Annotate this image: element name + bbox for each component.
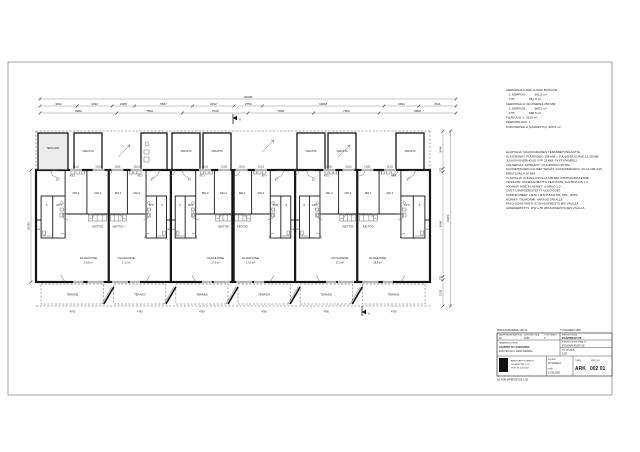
hall-label: ET — [188, 179, 192, 182]
building-address: KOIVUKUJA 3, 04200 KERAVA — [499, 350, 533, 353]
sink-fixture — [147, 208, 150, 211]
building-label: RAKENNUSKOHDE — [499, 341, 519, 344]
terrace-dimension: 4790 — [391, 311, 397, 314]
drawing-content-label: PIIRUSTUKSEN SISÄLTÖ — [562, 341, 587, 344]
wardrobe — [76, 171, 80, 174]
door-swing — [51, 171, 58, 178]
terrace-dimension: 4790 — [261, 311, 267, 314]
door-swing — [245, 214, 250, 219]
dimension-value: 11818 — [319, 102, 327, 106]
bedroom2-label: MH 2 — [258, 191, 265, 195]
terrace-screen — [104, 287, 114, 304]
window-size-label: 21x21 — [258, 167, 265, 169]
living-room-area: 17,0 m² — [122, 262, 131, 265]
living-room-area: 17,0 m² — [211, 262, 220, 265]
door-swing — [408, 171, 415, 178]
closet-label: VH — [426, 229, 429, 231]
drawing-number: 002 01 — [590, 366, 606, 372]
drawing-type-label: PIIRUSTUSLAJI — [562, 333, 578, 336]
dimension-value: 275 — [438, 167, 442, 172]
living-room-area: 19,5 m² — [84, 262, 93, 265]
closet-label: VH — [167, 229, 170, 231]
discipline-label: TUNN. — [575, 360, 582, 362]
window-size-label: 12x21 — [239, 167, 246, 169]
terrace-screen-line — [102, 287, 112, 304]
wardrobe — [381, 171, 385, 174]
sauna-stove — [43, 231, 46, 235]
bathroom-label: KPH — [188, 204, 193, 207]
living-room-label: OLOHUONE — [118, 256, 135, 260]
section-marker-letter: A — [368, 312, 370, 316]
sauna-stove — [163, 231, 165, 235]
storage-label: VARASTO — [336, 150, 347, 153]
dimension-value: 7600 — [343, 109, 350, 113]
general-note-line: ÄÄNENERISTYS: R'W ≥ 55 dB HUONEISTOJEN V… — [506, 206, 585, 210]
closet-label: VH — [296, 229, 299, 231]
bath-extension — [141, 133, 167, 170]
storage-label: VARASTO — [404, 150, 415, 153]
window-size-label: 21x21 — [202, 167, 209, 169]
bedroom2-label: MH 2 — [73, 191, 80, 195]
dimension-value: 8900 — [75, 109, 82, 113]
unit-id-label: AS 5 — [324, 175, 330, 178]
area-summary-line: KERROSALA RAK.LUVAN MUKAAN — [506, 88, 557, 92]
dimension-value: 2188 — [120, 102, 127, 106]
scale-label: MITTAKAAVA — [562, 349, 575, 352]
washer-fixture — [402, 213, 406, 217]
area-summary-line: KOKONAISALA (LASKETTU) 625,0 m² — [506, 125, 561, 129]
window-size-label: 21x21 — [134, 167, 141, 169]
terrace-label: TERASSI — [134, 293, 146, 297]
wardrobe — [81, 171, 85, 174]
discipline-code: ARK — [575, 366, 586, 372]
kitchen-counter — [216, 215, 232, 221]
sink-fixture — [144, 150, 149, 154]
hall-label: ET — [407, 179, 411, 182]
door-swing — [372, 214, 377, 219]
technical-label: TEKN./VAR. — [46, 147, 59, 150]
dimension-value: 10035 — [26, 222, 30, 230]
door-swing — [145, 233, 150, 238]
area-summary-line: KERROSLUKU 1 — [506, 120, 531, 124]
sauna-stove — [176, 231, 178, 235]
dimension-value: 7600 — [146, 109, 153, 113]
door-swing — [152, 171, 159, 178]
dimension-value: 7600 — [277, 109, 284, 113]
firm-logo — [499, 358, 508, 372]
dimension-value: 3611 — [55, 102, 62, 106]
dimension-value: 7600 — [212, 109, 219, 113]
number-label: PIIR. N:O — [591, 360, 600, 362]
terrace-dimension: 4790 — [324, 311, 330, 314]
terrace-screen — [290, 287, 300, 304]
terrace-screen — [352, 287, 362, 304]
kitchen-label: KEITTIÖ — [237, 225, 249, 229]
window-size-label: 21x21 — [326, 167, 333, 169]
door-swing — [276, 171, 283, 178]
door-swing — [340, 214, 345, 219]
window-size-label: 12x21 — [95, 167, 102, 169]
block-label: KORTTELI/TILA — [524, 333, 540, 336]
dimension-value: 3394 — [91, 102, 98, 106]
hall-label: ET — [56, 179, 60, 182]
title-block-above-left: PIIRUSTUSNUMERO 002 01 — [497, 330, 528, 332]
living-room-label: OLOHUONE — [369, 256, 386, 260]
designer-label: SUUNN. — [548, 359, 556, 361]
living-room-label: OLOHUONE — [242, 256, 259, 260]
dimension-value: 5637 — [160, 102, 167, 106]
living-room-label: OLOHUONE — [331, 256, 348, 260]
kitchen-label: KEITTIÖ — [363, 225, 375, 229]
bedroom2-label: MH 2 — [326, 191, 333, 195]
washer-fixture — [60, 213, 64, 217]
living-room-label: OLOHUONE — [207, 256, 224, 260]
storage-label: VARASTO — [180, 150, 191, 153]
bathroom-label: KPH — [273, 204, 278, 207]
building-name: ASUNTO OY KOIVURIVI — [499, 345, 530, 349]
section-marker-letter: A — [239, 118, 241, 122]
district-label: KAUPUNGINOSA/KYLÄ — [499, 333, 522, 336]
kitchen-counter — [235, 215, 251, 221]
window-size-label: 21x21 — [387, 167, 394, 169]
kitchen-label: KEITTIÖ — [92, 225, 104, 229]
sink-fixture — [60, 208, 64, 211]
hall-label: ET — [151, 179, 155, 182]
terrace-label: TERASSI — [258, 293, 270, 297]
bedroom2-label: MH 2 — [387, 191, 394, 195]
date-label: PVM — [548, 369, 553, 371]
bedroom1-label: MH 1 — [365, 191, 372, 195]
kitchen-counter — [88, 215, 106, 221]
technical-room — [38, 133, 68, 170]
plot-label: TONTTI/RN:O — [544, 334, 558, 336]
terrace-label: TERASSI — [196, 293, 208, 297]
date-value: 12.05.2020 — [548, 372, 561, 375]
door-swing — [269, 233, 274, 238]
firm-phone: PUH. 09 123 4567 — [511, 368, 530, 370]
area-summary-line: TILAVUUS n. 2615 m³ — [506, 116, 537, 120]
terrace-label: TERASSI — [388, 293, 400, 297]
title-block-above-right: TYÖNUMERO 2096 — [560, 329, 581, 332]
kitchen-counter — [340, 215, 356, 221]
designer-value: M. MÄKELÄ — [548, 362, 561, 365]
sauna-label: S — [161, 204, 163, 207]
kitchen-label: KEITTIÖ — [342, 225, 354, 229]
door-swing — [268, 214, 274, 220]
hall-label: ET — [275, 179, 279, 182]
bedroom2-label: MH 2 — [202, 191, 209, 195]
sink-fixture — [402, 208, 406, 211]
terrace-dimension: 4790 — [199, 311, 205, 314]
wardrobe — [386, 171, 390, 174]
dimension-value: 2135 — [438, 289, 442, 296]
wardrobe — [129, 171, 132, 174]
door-swing — [307, 171, 314, 178]
hall-label: ET — [312, 179, 316, 182]
wardrobe — [334, 171, 337, 174]
living-room-label: OLOHUONE — [80, 256, 97, 260]
door-swing — [316, 233, 321, 238]
bedroom1-label: MH 1 — [115, 191, 122, 195]
kitchen-label: KEITTIÖ — [113, 225, 125, 229]
wc-fixture — [145, 142, 149, 146]
terrace-label: TERASSI — [320, 293, 332, 297]
window-size-label: 12x21 — [221, 167, 228, 169]
unit-id-label: AS 6 — [391, 175, 397, 178]
dimension-value: 2750 — [245, 102, 252, 106]
terrace-dimension: 4790 — [70, 311, 76, 314]
bathroom-label: KPH — [405, 204, 410, 207]
unit-id-label: AS 2 — [137, 175, 143, 178]
kitchen-label: KEITTIÖ — [218, 225, 230, 229]
window-size-label: 21x21 — [73, 167, 80, 169]
floor-plan-drawing: PIIRUSTUSNUMERO 002 01 TYÖNUMERO 2096 KA… — [0, 0, 640, 452]
bathroom-label: KPH — [149, 204, 154, 207]
sink-fixture — [191, 208, 194, 211]
drawing-content-value: POHJAPIIRUSTUS — [562, 343, 585, 347]
dimension-value: 42096 — [244, 95, 253, 99]
dimension-value: 4032 — [210, 102, 217, 106]
terrace-screen — [166, 287, 176, 304]
washer-fixture — [144, 157, 149, 162]
dimension-value: 3611 — [434, 102, 441, 106]
sauna-label: S — [285, 204, 287, 207]
door-swing — [121, 214, 126, 219]
sink-fixture — [316, 208, 319, 211]
scale-value: 1:50 — [562, 352, 568, 356]
terrace-screen-line — [350, 287, 360, 304]
roof-slope-arrow — [118, 145, 130, 157]
terrace-screen — [228, 287, 238, 304]
terrace-dimension: 4790 — [137, 311, 143, 314]
dimension-value: 8900 — [414, 109, 421, 113]
area-summary-line: 1. KERROS 585,5 m² — [506, 106, 547, 110]
living-room-area: 17,0 m² — [336, 262, 345, 265]
bathroom-label: KPH — [312, 204, 317, 207]
firm-name-line1: ARKKITEHTITOIMISTO — [511, 360, 535, 363]
window-size-label: 12x21 — [364, 167, 371, 169]
roof-slope-arrow — [262, 140, 274, 152]
window-size-label: 12x21 — [114, 167, 121, 169]
area-summary-line: YHT. 561,5 m² — [506, 97, 541, 101]
terrace-screen-line — [288, 287, 298, 304]
terrace-screen-line — [164, 287, 174, 304]
living-room-area: 19,5 m² — [373, 262, 382, 265]
area-summary-line: KERROSALA ULKOSEINÄ 250 MM — [506, 102, 556, 106]
dimension-value: 3394 — [398, 102, 405, 106]
dimension-value: 8548 — [438, 221, 442, 228]
bedroom1-label: MH 1 — [345, 191, 352, 195]
door-swing — [89, 214, 94, 219]
storage-label: VARASTO — [305, 150, 316, 153]
bedroom1-label: MH 1 — [94, 191, 101, 195]
block-value: 1046 — [524, 337, 530, 340]
bedroom2-label: MH 2 — [133, 191, 140, 195]
door-swing — [192, 233, 197, 238]
section-marker-arrow — [362, 310, 366, 315]
closet-label: VH — [37, 229, 40, 231]
section-marker-arrow — [233, 116, 237, 121]
sink-fixture — [272, 208, 275, 211]
sauna-stove — [301, 231, 303, 235]
unit-id-label: AS 4 — [261, 175, 267, 178]
storage-label: VARASTO — [211, 150, 222, 153]
dimension-value: 275 — [438, 275, 442, 280]
unit-id-label: AS 1 — [70, 175, 76, 178]
sauna-label: S — [46, 204, 48, 207]
title-block-below: A3 POHJAPIIRUSTUS 1:50 — [497, 379, 529, 382]
drawing-type-value: PÄÄPIIRUSTUS — [562, 336, 582, 340]
living-room-area: 17,0 m² — [246, 262, 255, 265]
bedroom1-label: MH 1 — [220, 191, 227, 195]
wardrobe — [329, 171, 332, 174]
unit-id-label: AS 3 — [199, 175, 205, 178]
wardrobe — [205, 171, 208, 174]
sauna-label: S — [303, 204, 305, 207]
bathroom-label: KPH — [56, 204, 61, 207]
dimension-value: 3048 — [438, 146, 442, 153]
closet-label: VH — [292, 229, 295, 231]
door-swing — [144, 214, 150, 220]
dimension-value: 14281 — [446, 214, 450, 222]
storage-label: VARASTO — [82, 150, 93, 153]
sauna-stove — [287, 231, 289, 235]
drawing-sheet: PIIRUSTUSNUMERO 002 01 TYÖNUMERO 2096 KA… — [0, 0, 640, 452]
sauna-label: S — [179, 204, 181, 207]
firm-name-line2: SUUNNITTELU OY — [511, 364, 531, 366]
kitchen-counter — [111, 215, 127, 221]
wardrobe — [254, 171, 257, 174]
area-summary-line: 1. KERROS 561,5 m² — [506, 93, 547, 97]
terrace-label: TERASSI — [67, 293, 79, 297]
area-summary-line: YHT. 585,5 m² — [506, 111, 541, 115]
door-swing — [216, 214, 221, 219]
door-swing — [316, 214, 322, 220]
terrace-screen-line — [226, 287, 236, 304]
sauna-stove — [421, 231, 424, 235]
door-swing — [183, 171, 190, 178]
window-size-label: 12x21 — [345, 167, 352, 169]
closet-label: VH — [172, 229, 175, 231]
sauna-label: S — [419, 204, 421, 207]
wardrobe — [209, 171, 212, 174]
door-swing — [192, 214, 198, 220]
bedroom1-label: MH 1 — [239, 191, 246, 195]
kitchen-counter — [359, 215, 377, 221]
